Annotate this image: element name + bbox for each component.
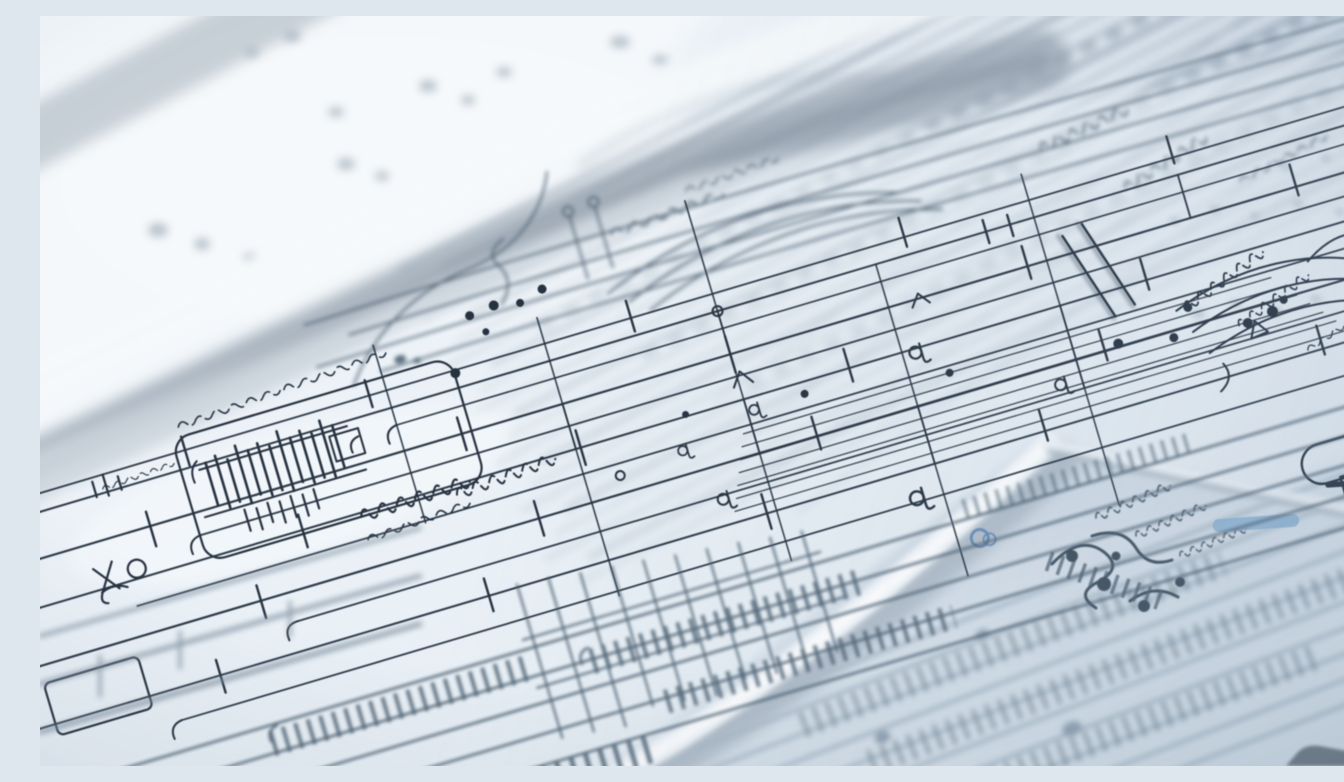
cool-tint-overlay — [40, 16, 1344, 766]
photo — [40, 16, 1344, 766]
photo-canvas — [40, 16, 1344, 766]
